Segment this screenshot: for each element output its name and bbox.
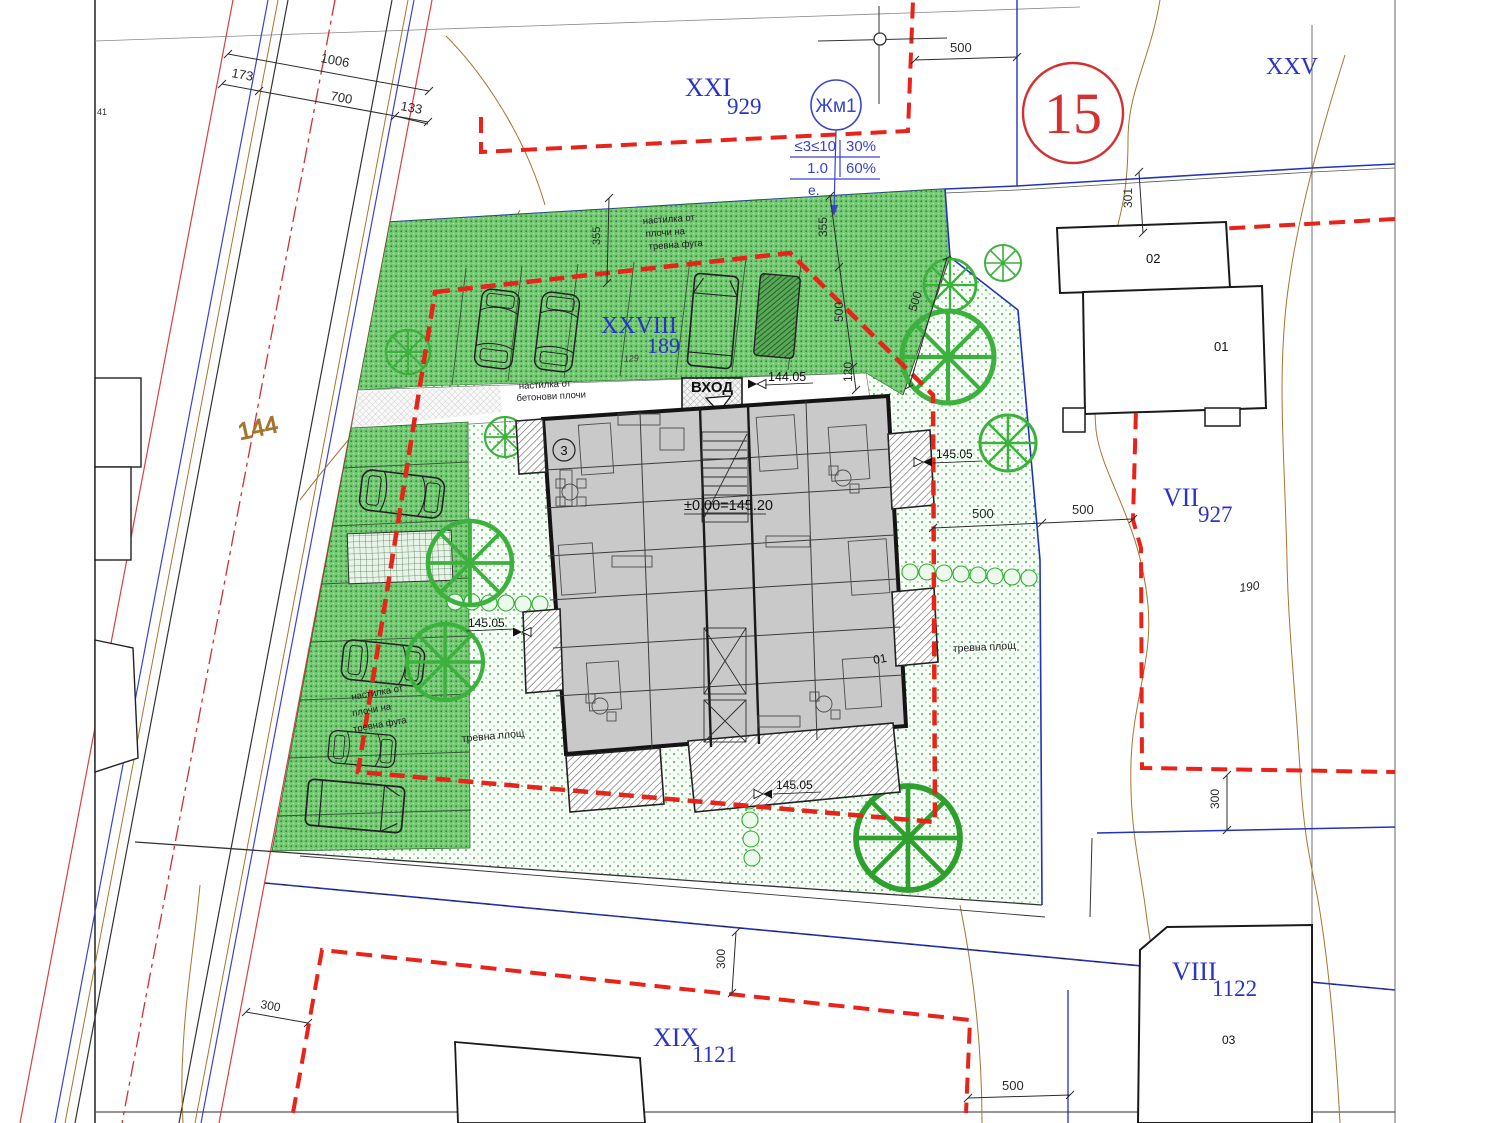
dim-500-mid-b: 500 <box>1072 502 1094 517</box>
neighbor-building-02: 02 <box>1146 251 1160 266</box>
zone-row2-right: 60% <box>846 160 876 177</box>
zone-row1-right: 30% <box>846 138 876 155</box>
dim-500-mid-a: 500 <box>972 506 994 521</box>
zone-row2-left: 1.0 <box>807 160 828 177</box>
entrance-label: ВХОД <box>691 379 733 396</box>
street-address-label: 41 <box>97 107 107 117</box>
spot-level-left: 145.05 <box>468 616 505 630</box>
plot-xix-number: 1121 <box>692 1042 737 1067</box>
plot-xxviii-number: 189 <box>647 333 680 358</box>
zone-note: е. <box>808 182 820 198</box>
dim-top-500: 500 <box>950 40 972 55</box>
dim-355: 355 <box>816 217 830 237</box>
ground-level-label: ±0.00=145.20 <box>684 498 773 514</box>
spot-level-bottom: 145.05 <box>776 778 813 792</box>
site-plan-page: 144 41 129 <box>0 0 1500 1123</box>
zone-name: Жм1 <box>815 96 856 117</box>
sheet-number: 15 <box>1044 81 1102 146</box>
plot-xxi-number: 929 <box>727 94 762 119</box>
plot-vii-number: 927 <box>1198 502 1233 527</box>
survey-point-icon <box>874 33 886 45</box>
main-building: 3 ±0.00=145.20 01 <box>516 396 938 812</box>
hatched-vehicle <box>754 273 801 358</box>
plot-xxv-roman: XXV <box>1266 54 1319 80</box>
room-badge: 3 <box>560 443 567 458</box>
dim-300-bottom: 300 <box>714 949 728 969</box>
dim-500-bottom: 500 <box>1002 1078 1024 1093</box>
plot-viii-roman: VIII <box>1172 957 1217 986</box>
dim-301: 301 <box>1121 188 1135 208</box>
building-number: 01 <box>872 651 888 667</box>
plot-vii-roman: VII <box>1163 483 1199 512</box>
dim-300-right: 300 <box>1208 789 1222 809</box>
plot-viii-number: 1122 <box>1212 976 1257 1001</box>
dim-500-chain: 500 <box>832 302 846 322</box>
dim-355-left: 355 <box>591 227 603 245</box>
plot-190-number: 190 <box>1238 578 1260 595</box>
zone-row1-left: ≤3≤10 <box>795 138 837 155</box>
site-plan-canvas: 144 41 129 <box>0 0 1500 1123</box>
dim-120: 120 <box>841 362 855 382</box>
stall-number-label: 129 <box>623 353 639 364</box>
neighbor-building-01: 01 <box>1214 339 1228 354</box>
spot-level-right: 145.05 <box>936 447 973 461</box>
plot-xxi-roman: XXI <box>685 73 731 102</box>
neighbor-building-03: 03 <box>1222 1033 1236 1047</box>
entrance-level: 144.05 <box>768 370 806 384</box>
